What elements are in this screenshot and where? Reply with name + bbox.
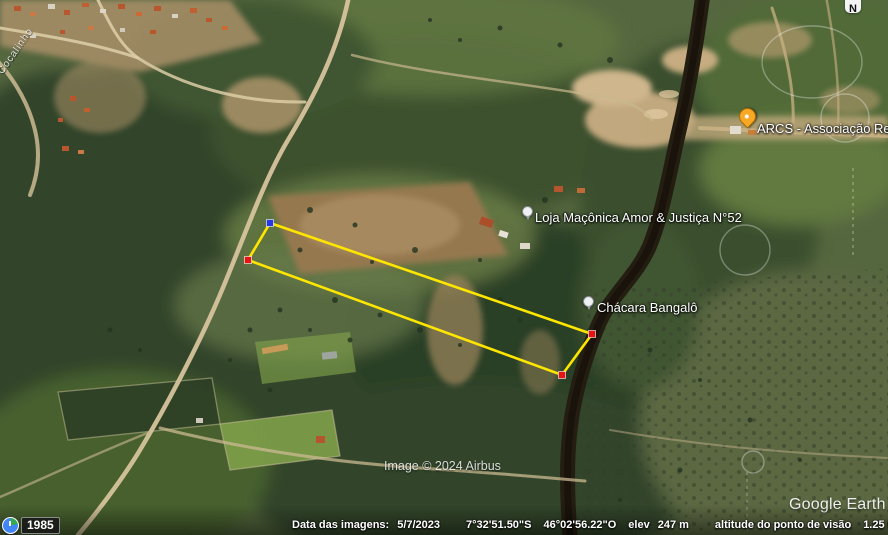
eye-altitude-label: altitude do ponto de visão [715, 519, 851, 531]
timeline-year-chip[interactable]: 1985 [21, 517, 60, 534]
vertex-marker-blue[interactable] [267, 220, 274, 227]
compass-north-indicator[interactable]: N [845, 0, 861, 13]
vertex-marker-red-1[interactable] [589, 331, 596, 338]
longitude-value: 46°02'56.22"O [543, 519, 616, 531]
placemark-label-chacara-bangalo[interactable]: Chácara Bangalô [597, 300, 697, 315]
chacara-bangalo-pin-icon[interactable] [583, 296, 594, 307]
placemark-label-loja-maconica[interactable]: Loja Maçônica Amor & Justiça N°52 [535, 210, 742, 225]
eye-altitude-value: 1.25 km [863, 519, 888, 531]
loja-maconica-pin-icon[interactable] [522, 206, 533, 217]
imagery-credit: Image © 2024 Airbus [384, 459, 501, 473]
satellite-imagery [0, 0, 888, 535]
latitude-value: 7°32'51.50"S [466, 519, 531, 531]
google-earth-viewport[interactable]: Loja Maçônica Amor & Justiça N°52 Chácar… [0, 0, 888, 535]
imagery-date-label: Data das imagens: [292, 519, 389, 531]
imagery-date: 5/7/2023 [397, 519, 440, 531]
placemark-label-arcs[interactable]: ARCS - Associação Recreativa [757, 121, 888, 136]
vertex-marker-red-2[interactable] [559, 372, 566, 379]
status-bar: Data das imagens: 5/7/2023 7°32'51.50"S … [292, 518, 886, 532]
elevation-label: elev [628, 519, 649, 531]
vertex-marker-red-3[interactable] [245, 257, 252, 264]
history-clock-icon[interactable] [2, 517, 19, 534]
elevation-value: 247 m [658, 519, 689, 531]
